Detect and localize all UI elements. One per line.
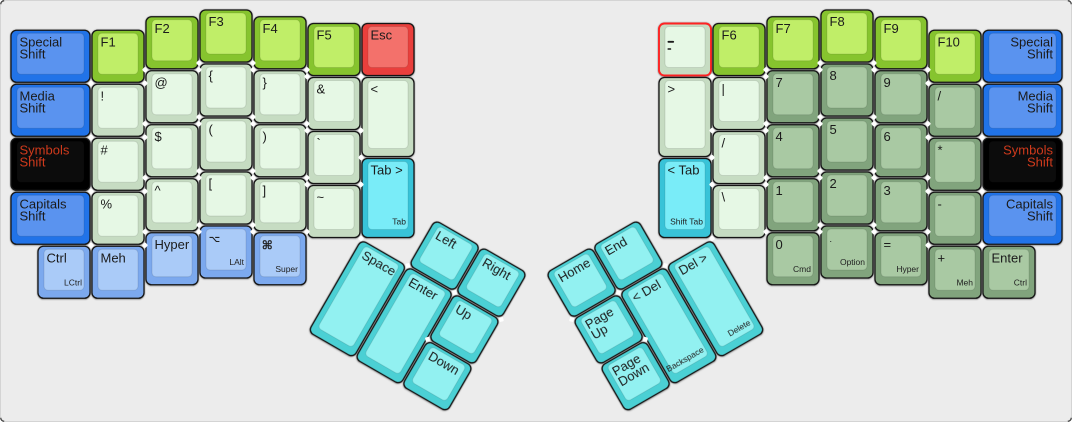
- svg-text:/: /: [938, 88, 942, 103]
- svg-text:(: (: [209, 122, 214, 137]
- svg-text:}: }: [263, 75, 268, 90]
- svg-text:< Tab: < Tab: [668, 163, 700, 178]
- svg-text:Shift: Shift: [1027, 154, 1053, 169]
- svg-text:Shift: Shift: [1027, 46, 1053, 61]
- svg-text:Shift: Shift: [20, 100, 46, 115]
- svg-text:F3: F3: [209, 14, 224, 29]
- svg-text:Shift: Shift: [20, 154, 46, 169]
- svg-text:Ctrl: Ctrl: [1014, 277, 1027, 287]
- svg-text:7: 7: [776, 75, 783, 90]
- svg-text:6: 6: [884, 129, 891, 144]
- svg-text:LAlt: LAlt: [229, 257, 244, 267]
- svg-text:0: 0: [776, 237, 783, 252]
- svg-text:Tab >: Tab >: [371, 163, 403, 178]
- svg-text:4: 4: [776, 129, 783, 144]
- svg-text:F1: F1: [101, 34, 116, 49]
- svg-text:Tab: Tab: [392, 217, 406, 227]
- svg-text:Esc: Esc: [371, 28, 393, 43]
- svg-text:F10: F10: [938, 34, 960, 49]
- svg-text:*: *: [938, 142, 943, 157]
- svg-text:$: $: [155, 129, 163, 144]
- svg-text:Cmd: Cmd: [793, 264, 811, 274]
- svg-text:F6: F6: [722, 28, 737, 43]
- svg-text:~: ~: [317, 190, 325, 205]
- svg-text:\: \: [722, 190, 726, 205]
- svg-text:{: {: [209, 68, 214, 83]
- svg-text:[: [: [209, 176, 213, 191]
- svg-text:5: 5: [830, 122, 837, 137]
- svg-text:F9: F9: [884, 21, 899, 36]
- svg-text:-: -: [938, 196, 942, 211]
- svg-text:Shift: Shift: [1027, 100, 1053, 115]
- svg-text:/: /: [722, 136, 726, 151]
- svg-text:F2: F2: [155, 21, 170, 36]
- svg-text:F8: F8: [830, 14, 845, 29]
- svg-text:Shift: Shift: [20, 208, 46, 223]
- svg-text:Meh: Meh: [956, 277, 973, 287]
- svg-text:%: %: [101, 196, 113, 211]
- svg-text:!: !: [101, 88, 105, 103]
- svg-text:F4: F4: [263, 21, 278, 36]
- svg-text:3: 3: [884, 183, 891, 198]
- svg-text:Meh: Meh: [101, 250, 126, 265]
- svg-text:F5: F5: [317, 28, 332, 43]
- svg-text:2: 2: [830, 176, 837, 191]
- svg-text:Option: Option: [840, 257, 865, 267]
- svg-text:Hyper: Hyper: [896, 264, 919, 274]
- svg-text:+: +: [938, 250, 946, 265]
- svg-text:<: <: [371, 82, 379, 97]
- svg-text:Shift: Shift: [1027, 208, 1053, 223]
- svg-text:]: ]: [263, 183, 267, 198]
- svg-text:Shift: Shift: [20, 46, 46, 61]
- svg-text:@: @: [155, 75, 168, 90]
- svg-text:.: .: [830, 234, 833, 244]
- svg-text:Enter: Enter: [992, 250, 1024, 265]
- svg-text:LCtrl: LCtrl: [64, 277, 82, 287]
- svg-text:Ctrl: Ctrl: [47, 250, 67, 265]
- svg-text:9: 9: [884, 75, 891, 90]
- svg-text:Shift Tab: Shift Tab: [670, 217, 703, 227]
- svg-text:>: >: [668, 82, 676, 97]
- svg-text:|: |: [722, 82, 725, 97]
- svg-text:Super: Super: [275, 264, 298, 274]
- svg-text:^: ^: [155, 183, 162, 198]
- svg-text:F7: F7: [776, 21, 791, 36]
- svg-text:`: `: [317, 136, 321, 151]
- svg-text:8: 8: [830, 68, 837, 83]
- svg-text:#: #: [101, 142, 109, 157]
- svg-text:=: =: [884, 237, 892, 252]
- svg-text:1: 1: [776, 183, 783, 198]
- svg-text:&: &: [317, 82, 326, 97]
- svg-text:): ): [263, 129, 267, 144]
- svg-text:Hyper: Hyper: [155, 237, 190, 252]
